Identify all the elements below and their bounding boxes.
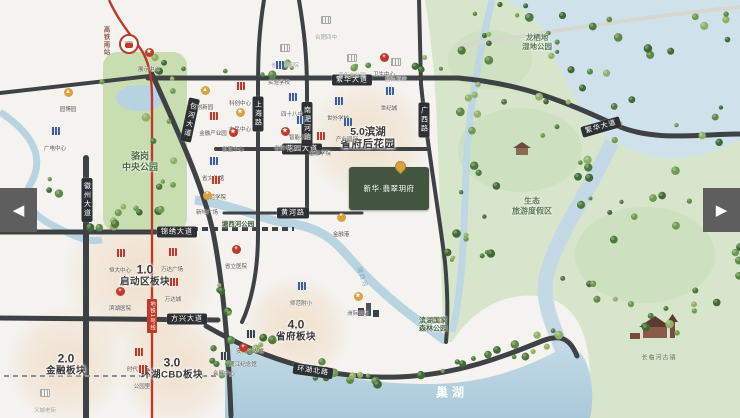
central-park-label: 骆岗中央公园 (122, 151, 158, 173)
road-label-nanfeihe: 南淝河路 (302, 102, 313, 146)
carousel-prev-button[interactable]: ◀ (0, 188, 37, 232)
road-label-huizhou: 徽州大道 (82, 178, 93, 222)
project-highlight-box: 新华·翡翠玥府 (349, 167, 429, 210)
section-label-4: 4.0省府板块 (276, 319, 316, 344)
hsr-station-label: 高铁南站 (100, 26, 110, 56)
metro-line-badge: 地铁1号线 (147, 299, 157, 333)
left-arrow-icon: ◀ (13, 201, 25, 219)
road-label-shanghai: 上海路 (253, 97, 264, 132)
section-label-1: 1.0启动区板块 (120, 264, 170, 289)
tangxihe-park-label: 塘西河公园 (222, 218, 255, 228)
wetland-park-label: 龙栖地湿地公园 (522, 33, 552, 51)
project-name: 新华·翡翠玥府 (364, 183, 415, 194)
section-label-5: 5.0滨湖省府后花园 (341, 126, 396, 150)
road-label-huanghe: 黄河路 (277, 208, 309, 219)
section-label-3: 3.0环湖CBD板块 (141, 357, 203, 382)
hsr-station-icon (119, 34, 139, 54)
section-label-2: 2.0金融板块 (46, 353, 86, 378)
map-carousel-slide: 繁华大道 繁华大道 花园大道 黄河路 锦绣大道 方兴大道 环湖北路 徽州大道 包… (0, 0, 740, 418)
forest-park-label: 滨湖国家森林公园 (419, 318, 447, 335)
ancient-town-label: 长临河古镇 (641, 353, 676, 362)
carousel-next-button[interactable]: ▶ (703, 188, 740, 232)
road-label-jinxiu: 锦绣大道 (157, 227, 197, 238)
eco-resort-label: 生态旅游度假区 (512, 196, 552, 215)
road-label-fangxing: 方兴大道 (167, 314, 207, 325)
right-arrow-icon: ▶ (716, 201, 728, 219)
lake-label: 巢湖 (436, 384, 468, 401)
road-label-guangxi: 广西路 (419, 103, 430, 138)
road-label-fanhua: 繁华大道 (332, 75, 372, 86)
